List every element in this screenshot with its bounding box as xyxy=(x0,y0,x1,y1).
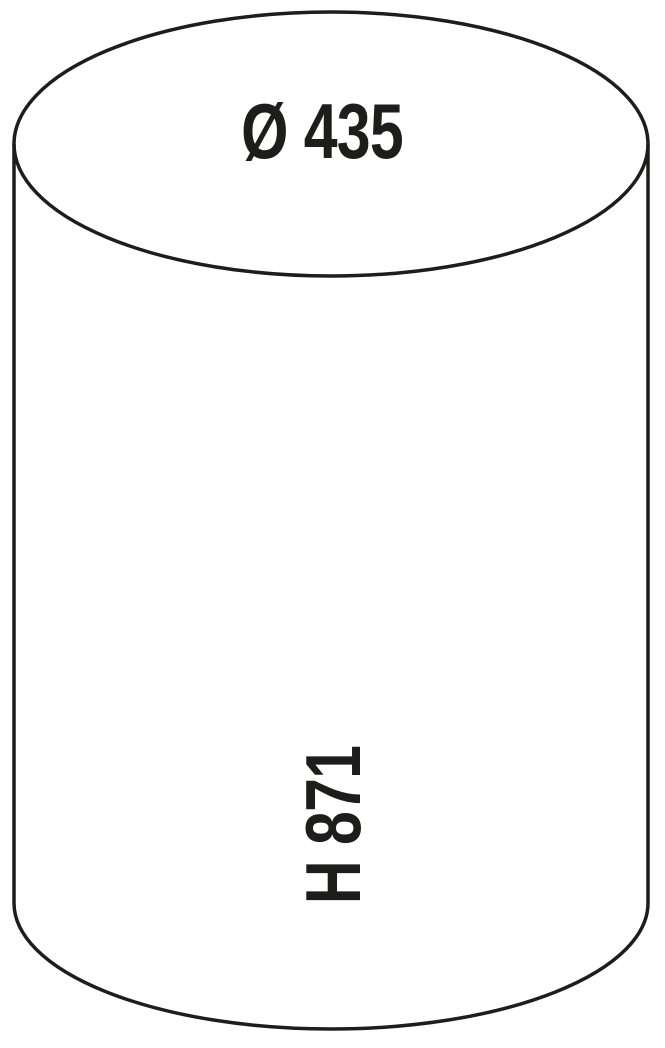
height-label: H 871 xyxy=(294,708,372,942)
diameter-label: Ø 435 xyxy=(205,92,439,170)
cylinder-dimension-diagram: Ø 435 H 871 xyxy=(0,0,665,1048)
